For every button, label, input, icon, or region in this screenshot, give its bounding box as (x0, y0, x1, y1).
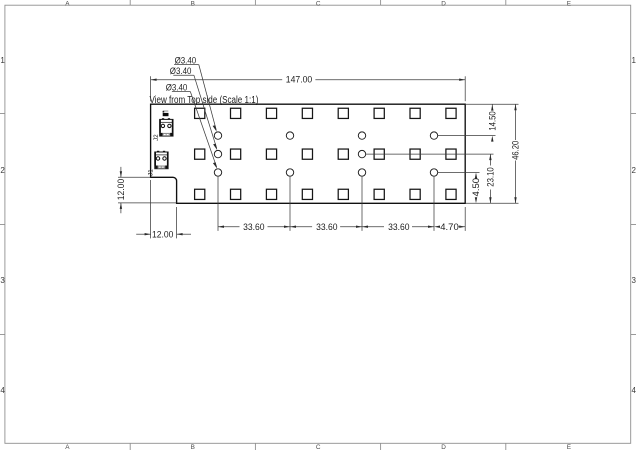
svg-text:A: A (65, 0, 70, 7)
svg-text:B: B (191, 444, 195, 450)
svg-text:33.60: 33.60 (243, 222, 265, 232)
svg-text:2: 2 (0, 166, 5, 175)
svg-text:12.00: 12.00 (116, 179, 126, 201)
svg-text:33.60: 33.60 (316, 222, 338, 232)
svg-text:E: E (567, 0, 571, 7)
svg-text:J1: J1 (148, 169, 155, 176)
svg-text:2: 2 (632, 166, 636, 175)
svg-text:4: 4 (632, 386, 636, 395)
svg-text:1: 1 (0, 56, 5, 65)
svg-text:46.20: 46.20 (511, 141, 521, 160)
svg-text:23.10: 23.10 (486, 167, 496, 187)
svg-text:4.50: 4.50 (471, 178, 481, 197)
svg-text:1: 1 (632, 56, 636, 65)
svg-text:D: D (441, 0, 446, 7)
svg-text:C: C (316, 0, 321, 7)
svg-text:33.60: 33.60 (388, 222, 410, 232)
svg-text:3: 3 (0, 276, 5, 285)
svg-text:Ø3.40: Ø3.40 (170, 66, 192, 76)
svg-text:Ø3.40: Ø3.40 (166, 83, 188, 93)
svg-text:J2: J2 (153, 134, 160, 141)
svg-text:147.00: 147.00 (286, 75, 313, 85)
svg-text:C: C (316, 444, 321, 450)
svg-text:12.00: 12.00 (152, 229, 174, 239)
svg-text:E: E (567, 444, 571, 450)
svg-text:14.50: 14.50 (487, 111, 497, 131)
svg-text:D: D (441, 444, 446, 450)
svg-text:4.70: 4.70 (440, 222, 459, 232)
svg-text:B: B (191, 0, 195, 7)
svg-text:4: 4 (0, 386, 5, 395)
svg-text:3: 3 (632, 276, 636, 285)
svg-text:A: A (65, 444, 70, 450)
svg-text:Ø3.40: Ø3.40 (175, 56, 197, 66)
